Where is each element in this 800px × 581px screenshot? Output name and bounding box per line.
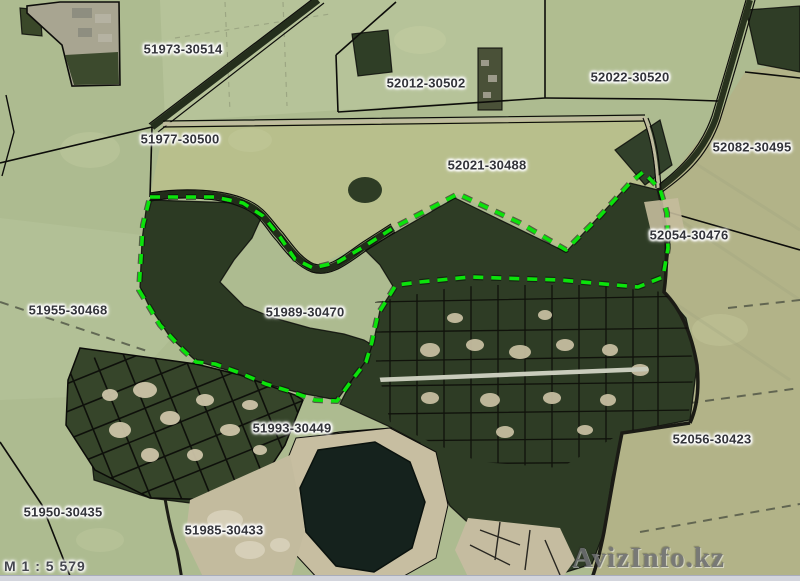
parcel-label: 51950-30435 <box>24 505 103 520</box>
parcel-label: 52054-30476 <box>650 228 729 243</box>
cadastral-satellite-map[interactable]: 51973-30514 51977-30500 52012-30502 5202… <box>0 0 800 581</box>
parcel-label: 51985-30433 <box>185 523 264 538</box>
parcel-label: 52021-30488 <box>448 158 527 173</box>
watermark: AvizInfo.kz <box>572 542 725 575</box>
parcel-label: 51993-30449 <box>253 421 332 436</box>
parcel-label: 51955-30468 <box>29 303 108 318</box>
parcel-label: 51973-30514 <box>144 42 223 57</box>
window-edge-strip <box>0 575 800 581</box>
parcel-label: 51977-30500 <box>141 132 220 147</box>
parcel-label: 51989-30470 <box>266 305 345 320</box>
parcel-label: 52022-30520 <box>591 70 670 85</box>
parcel-label: 52056-30423 <box>673 432 752 447</box>
parcel-label: 52082-30495 <box>713 140 792 155</box>
map-scale-label: M 1 : 5 579 <box>4 558 86 574</box>
parcel-label: 52012-30502 <box>387 76 466 91</box>
